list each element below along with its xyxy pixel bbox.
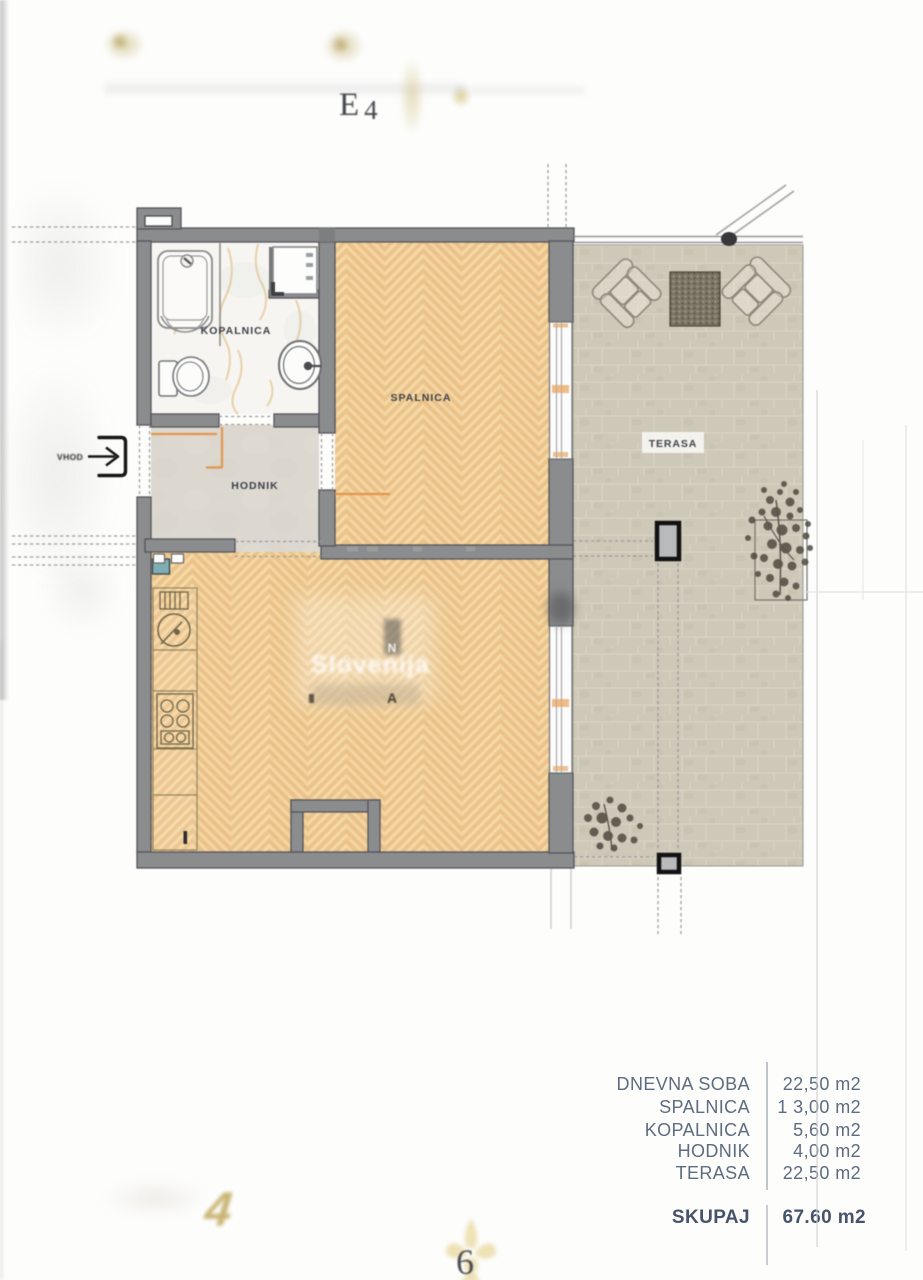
svg-text:A: A: [387, 690, 397, 706]
svg-text:KOPALNICA: KOPALNICA: [201, 325, 272, 337]
svg-text:VHOD: VHOD: [57, 452, 83, 462]
svg-text:Slovenija: Slovenija: [311, 651, 430, 679]
svg-text:HODNIK: HODNIK: [231, 480, 278, 492]
svg-text:TERASA: TERASA: [649, 438, 698, 450]
svg-text:SPALNICA: SPALNICA: [391, 392, 452, 404]
